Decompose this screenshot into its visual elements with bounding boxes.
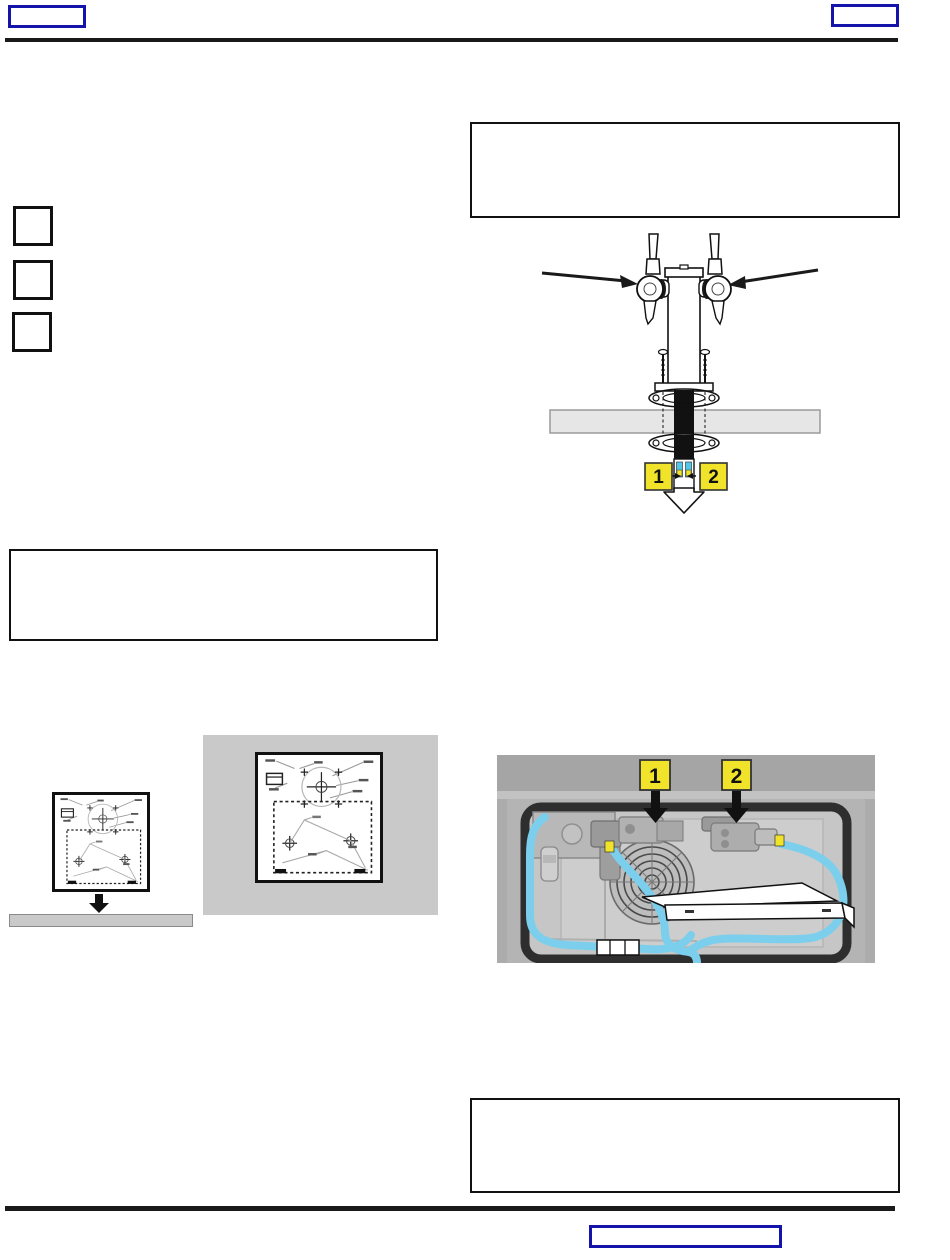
- step-box-3: [12, 312, 52, 352]
- tube-fitting: [541, 847, 558, 881]
- mounting-screw-right: [701, 350, 710, 384]
- tower-base-plate: [655, 383, 713, 391]
- lower-flange: [649, 434, 719, 462]
- tower-callout-2-label: 2: [708, 467, 719, 488]
- footer-nav-box[interactable]: [589, 1225, 782, 1248]
- footer-rule: [5, 1206, 895, 1211]
- header-rule: [5, 38, 898, 42]
- step-box-2: [13, 260, 53, 300]
- drill-template-large: [258, 755, 380, 880]
- tube-clip: [597, 940, 639, 955]
- note-box-top-right: [470, 122, 900, 218]
- drill-template-small: [55, 795, 147, 889]
- figure-template-enlarged-panel: [203, 735, 438, 915]
- place-template-down-arrow: [85, 894, 113, 914]
- manual-page: 1 2: [0, 0, 950, 1260]
- figure-cooler-interior: 1 2: [497, 755, 875, 963]
- faucet-right: [702, 234, 731, 324]
- cooler-callout-1: 1: [640, 760, 670, 790]
- counter-edge-bar: [9, 914, 193, 927]
- tower-column: [657, 265, 711, 386]
- header-right-nav-box[interactable]: [831, 4, 899, 27]
- faucet-pointer-arrow-right: [728, 270, 818, 289]
- note-box-mid-left: [9, 549, 438, 641]
- cooler-interior-drawing: 1 2: [497, 755, 875, 963]
- step-box-1: [13, 206, 53, 246]
- figure-template-on-counter: [52, 792, 150, 892]
- tower-callout-1-label: 1: [653, 467, 664, 488]
- header-left-nav-box[interactable]: [8, 5, 86, 28]
- tower-callout-2: 2: [700, 463, 727, 490]
- draft-tower-drawing: 1 2: [500, 232, 840, 514]
- cooler-callout-1-label: 1: [649, 765, 661, 788]
- mounting-screw-left: [659, 350, 668, 384]
- hollow-down-arrow: [664, 488, 704, 513]
- faucet-pointer-arrow-left: [542, 273, 638, 288]
- figure-draft-tower: 1 2: [500, 232, 840, 514]
- faucet-left: [637, 234, 666, 324]
- note-box-bottom-right: [470, 1098, 900, 1193]
- cooler-callout-2: 2: [722, 760, 751, 790]
- tower-callout-1: 1: [645, 463, 672, 490]
- cooler-callout-2-label: 2: [731, 765, 743, 788]
